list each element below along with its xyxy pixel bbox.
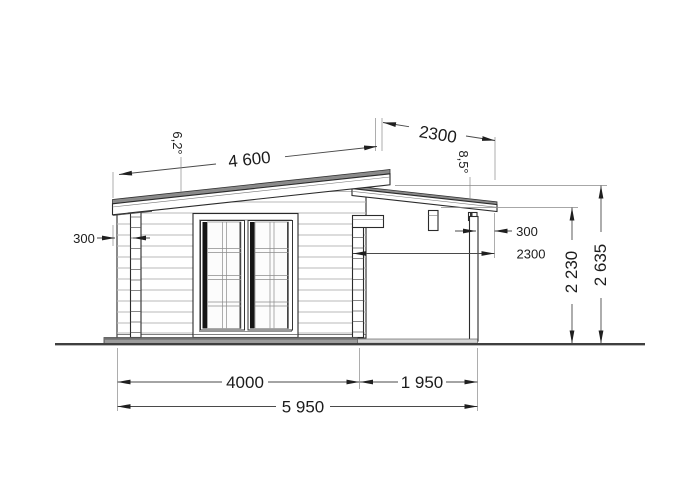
- dim-total-width: 5 950: [118, 398, 478, 417]
- door-glazing-shadow: [250, 222, 255, 329]
- dim-roof-angle-label: 6,2°: [170, 131, 185, 154]
- dim-left-overhang-label: 300: [73, 231, 95, 246]
- dim-canopy-roof-angle: 8,5°: [456, 150, 471, 199]
- dim-terrace-width: 1 950: [360, 373, 478, 392]
- door-leaf-left: [201, 221, 245, 331]
- dim-right-overhang-label: 300: [516, 224, 538, 239]
- door-leaf-right: [248, 221, 293, 331]
- canopy-bracket: [429, 211, 439, 231]
- dim-cabin-width-label: 4000: [226, 373, 264, 392]
- dim-canopy-roof-length-label: 2300: [418, 122, 458, 147]
- dim-roof-length-label: 4 600: [227, 148, 271, 171]
- dim-canopy-depth: 2300: [353, 247, 545, 262]
- dim-canopy-roof-length: 2300: [382, 118, 495, 180]
- dim-height-ridge-label: 2 635: [591, 244, 610, 287]
- dim-terrace-width-label: 1 950: [401, 373, 444, 392]
- cabin-side-elevation-drawing: 4 600 6,2° 2300 8,5° 300 300 2300: [0, 0, 700, 495]
- elevation-sheet: 4 600 6,2° 2300 8,5° 300 300 2300: [0, 0, 700, 495]
- corner-log-ends-right: [353, 227, 364, 338]
- double-glazed-door: [193, 214, 298, 338]
- dim-total-width-label: 5 950: [282, 398, 325, 417]
- dim-height-canopy-label: 2 230: [562, 251, 581, 294]
- wall-plate-beam: [353, 216, 384, 228]
- terrace-post: [469, 213, 479, 342]
- terrace-deck: [358, 339, 478, 343]
- dim-roof-angle: 6,2°: [170, 131, 185, 192]
- corner-log-ends-left: [131, 212, 142, 338]
- dim-canopy-roof-angle-label: 8,5°: [456, 150, 471, 173]
- door-glazing-shadow: [203, 222, 208, 329]
- dim-height-canopy: 2 230: [441, 208, 581, 344]
- dim-canopy-depth-label: 2300: [517, 247, 546, 262]
